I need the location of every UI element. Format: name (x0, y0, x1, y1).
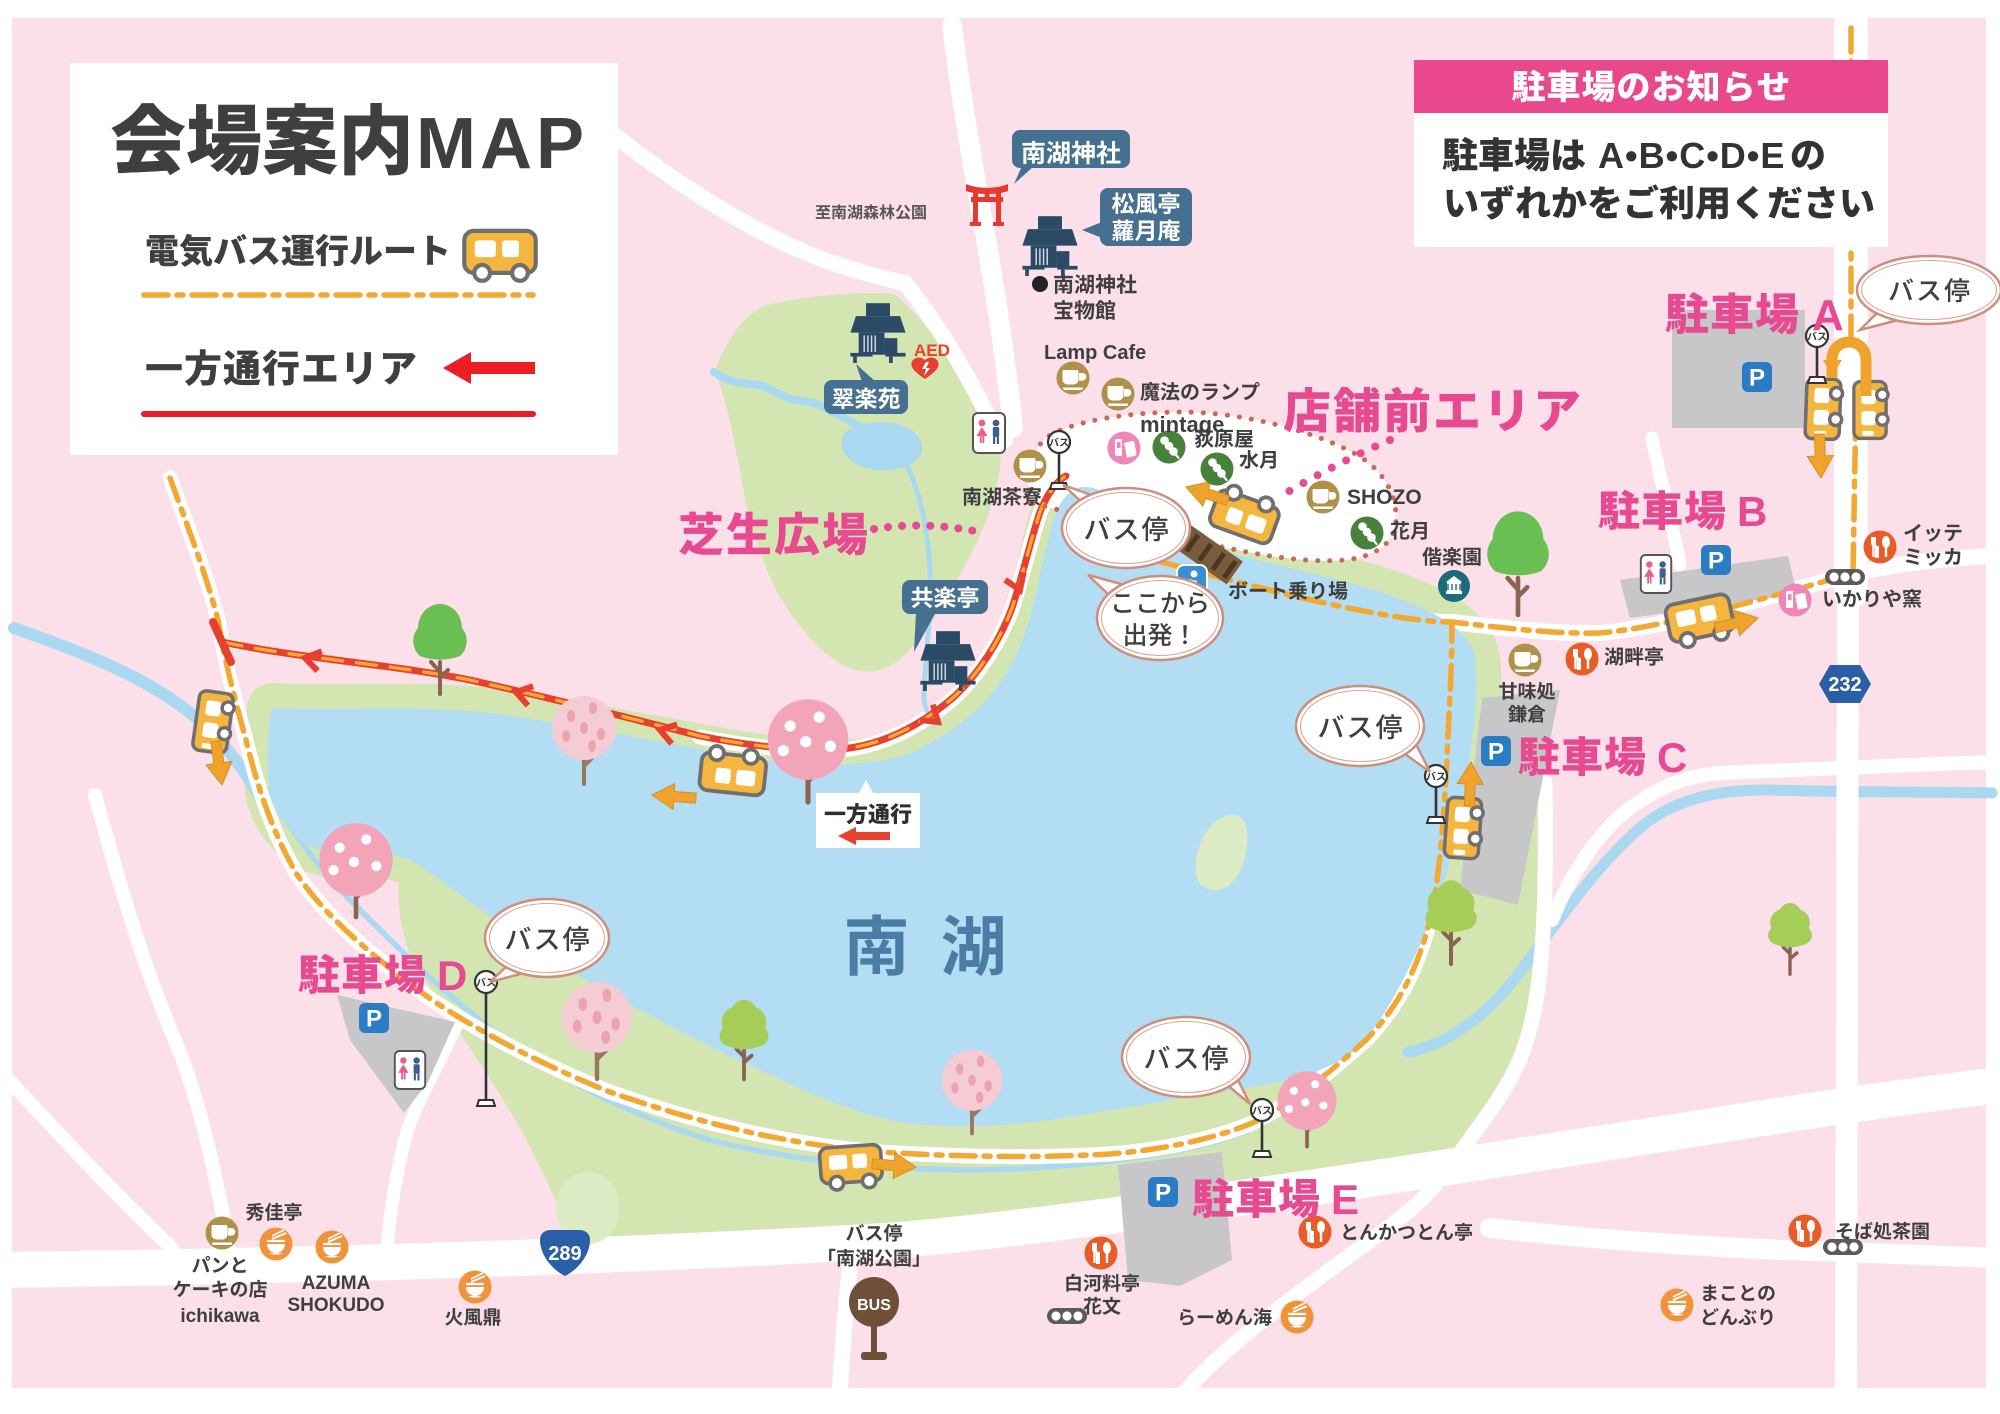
svg-text:A•B•C•D•E: A•B•C•D•E (1598, 135, 1785, 176)
svg-text:SHOKUDO: SHOKUDO (287, 1295, 384, 1316)
svg-text:Lamp Cafe: Lamp Cafe (1044, 342, 1146, 364)
svg-text:AED: AED (914, 341, 950, 360)
svg-text:C: C (1657, 734, 1687, 781)
svg-text:mintage: mintage (1140, 412, 1224, 437)
svg-text:MAP: MAP (416, 104, 588, 184)
svg-text:A: A (1812, 291, 1844, 340)
svg-text:SHOZO: SHOZO (1347, 486, 1422, 509)
svg-text:AZUMA: AZUMA (302, 1273, 371, 1294)
svg-text:BUS: BUS (857, 1297, 891, 1314)
svg-text:E: E (1331, 1176, 1359, 1223)
svg-text:ichikawa: ichikawa (180, 1306, 260, 1327)
svg-text:B: B (1737, 488, 1767, 535)
svg-text:D: D (437, 952, 467, 999)
svg-text:289: 289 (548, 1243, 581, 1265)
svg-text:232: 232 (1828, 674, 1861, 696)
